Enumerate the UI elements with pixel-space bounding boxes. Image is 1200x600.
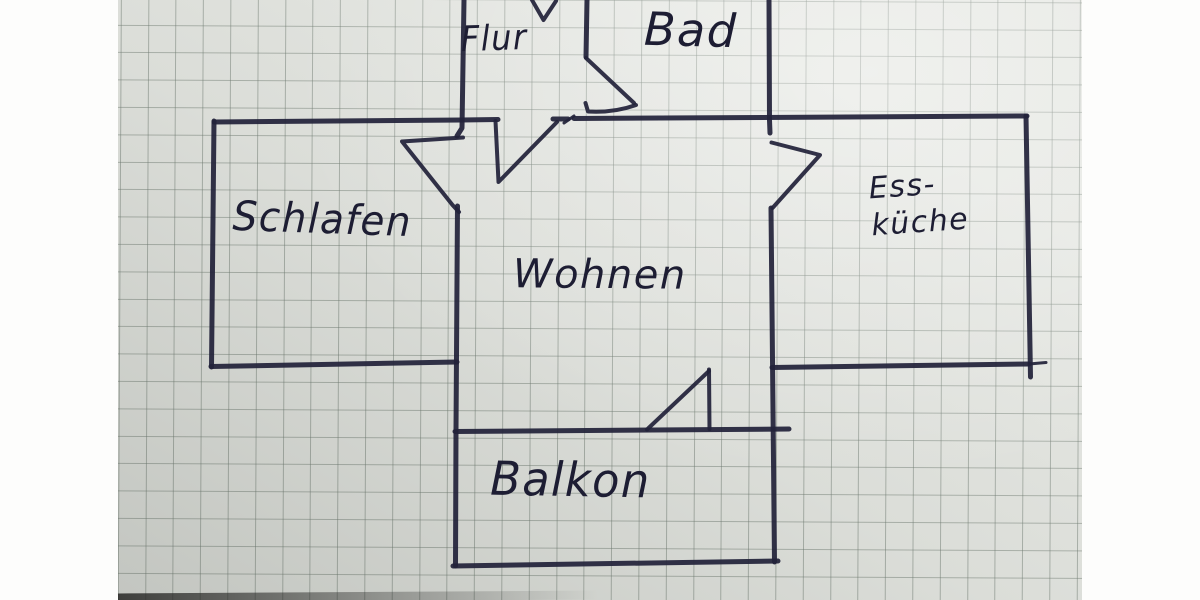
floor-plan-photo: Flur Bad Schlafen Wohnen Ess- küche Balk… [0, 0, 1200, 600]
door-jamb-balkon-icon [709, 370, 710, 430]
wall-top-main-left [214, 120, 498, 123]
room-label-bad: Bad [643, 6, 738, 54]
door-arc-bad-icon [586, 103, 637, 112]
wall-top-main-right [574, 116, 1027, 119]
wall-bad-right [769, 0, 770, 133]
room-label-wohnen: Wohnen [513, 254, 687, 296]
wall-wohnen-left [456, 206, 458, 566]
wall-flur-bad-divider [586, 0, 587, 57]
door-leaf-balkon-icon [647, 371, 709, 430]
room-label-schlafen: Schlafen [232, 196, 413, 243]
door-swing-esskueche-icon [772, 143, 821, 209]
wall-schlafen-bottom [211, 362, 457, 367]
room-label-balkon: Balkon [490, 456, 651, 506]
wall-schlafen-left [212, 121, 215, 367]
door-swing-flur-icon [496, 121, 558, 182]
door-leaf-bad-icon [586, 58, 634, 103]
door-swing-entrance-icon [532, 0, 556, 20]
wall-wohnen-bottom [455, 429, 789, 432]
wall-wohnen-balkon-right [771, 208, 775, 562]
room-label-esskueche: Ess- küche [868, 164, 971, 245]
wall-esskueche-bottom [772, 364, 1029, 368]
wall-balkon-bottom [453, 561, 778, 566]
pen-tick-esskueche-overshoot [1029, 363, 1046, 365]
room-label-flur: Flur [460, 21, 528, 58]
wall-esskueche-right [1026, 116, 1031, 377]
floorplan-ink-drawing [0, 0, 1200, 600]
room-label-esskueche-line2: küche [870, 201, 970, 245]
